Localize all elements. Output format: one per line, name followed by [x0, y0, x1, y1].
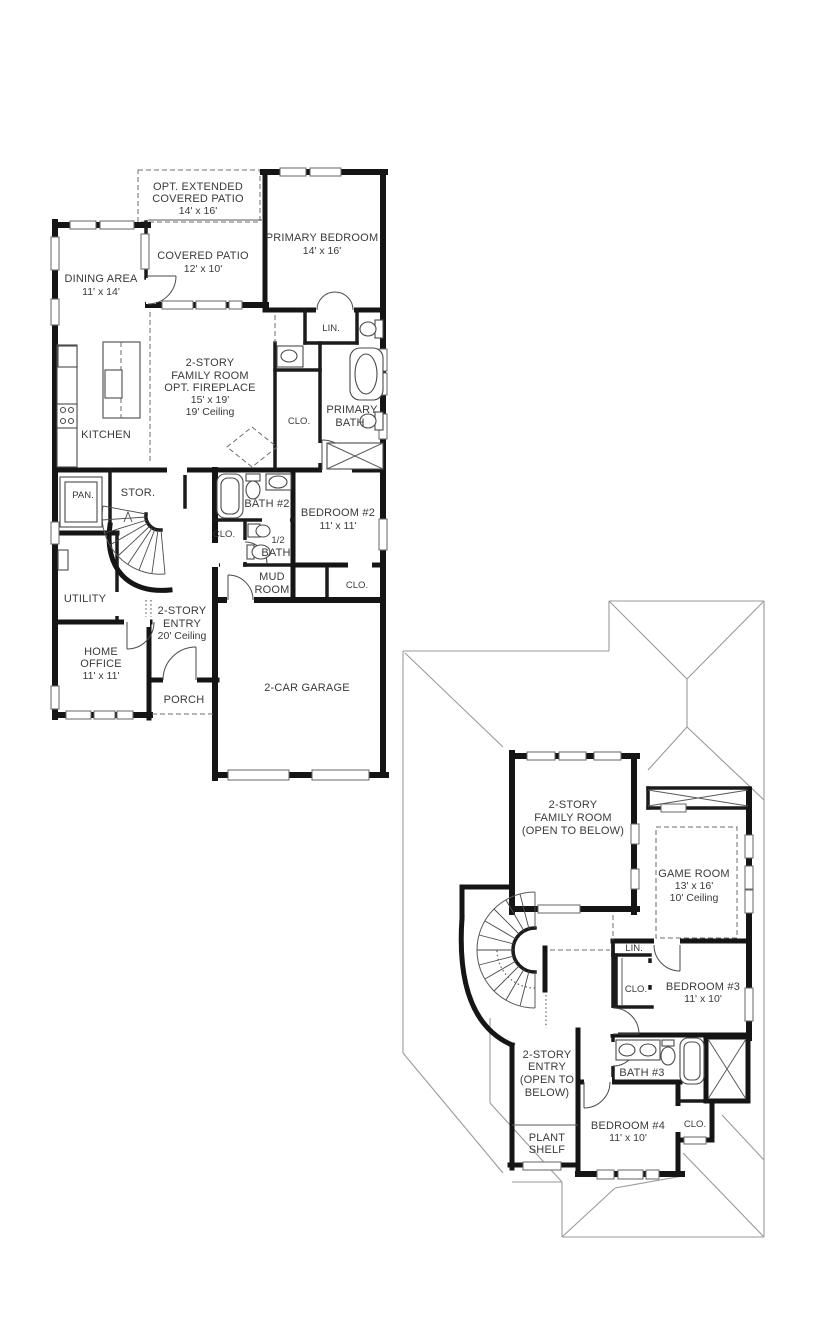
room-label-utility: UTILITY	[64, 593, 107, 605]
svg-text:SHELF: SHELF	[529, 1144, 566, 1156]
svg-text:2-STORY: 2-STORY	[523, 1049, 572, 1061]
svg-text:OPT. FIREPLACE: OPT. FIREPLACE	[164, 382, 255, 394]
svg-text:14' x 16': 14' x 16'	[179, 205, 217, 217]
svg-text:(OPEN TO BELOW): (OPEN TO BELOW)	[522, 825, 624, 837]
refrigerator	[58, 346, 77, 367]
bath2-sink	[266, 474, 291, 490]
svg-text:2-STORY: 2-STORY	[186, 357, 235, 369]
room-label-family-room: 2-STORY FAMILY ROOM OPT. FIREPLACE 15' x…	[164, 357, 255, 418]
range	[57, 404, 77, 428]
svg-text:ENTRY: ENTRY	[528, 1061, 567, 1073]
room-label-home-office: HOME OFFICE 11' x 11'	[80, 646, 122, 682]
room-label-covered-patio: COVERED PATIO 12' x 10'	[157, 250, 249, 275]
svg-text:BATH: BATH	[261, 547, 290, 559]
kitchen-island	[103, 342, 140, 418]
svg-text:2-STORY: 2-STORY	[549, 799, 598, 811]
svg-text:15' x 19': 15' x 19'	[191, 394, 229, 406]
svg-text:FAMILY ROOM: FAMILY ROOM	[534, 812, 612, 824]
room-label-porch: PORCH	[164, 694, 205, 706]
room-label-family-room-open: 2-STORY FAMILY ROOM (OPEN TO BELOW)	[522, 799, 624, 837]
room-label-opt-extended-covered-patio: OPT. EXTENDED COVERED PATIO 14' x 16'	[152, 181, 244, 217]
room-label-garage: 2-CAR GARAGE	[264, 682, 350, 694]
svg-text:PRIMARY BEDROOM: PRIMARY BEDROOM	[266, 232, 379, 244]
bath3-tub	[680, 1038, 704, 1084]
room-label-dining-area: DINING AREA 11' x 14'	[64, 273, 138, 298]
svg-text:HOME: HOME	[84, 646, 118, 658]
utility-appliance	[58, 550, 68, 570]
room-label-mud-room: MUD ROOM	[254, 571, 289, 596]
room-label-bath2: BATH #2	[244, 498, 289, 510]
linen2-door	[654, 945, 680, 971]
svg-text:FAMILY ROOM: FAMILY ROOM	[171, 370, 249, 382]
svg-text:11' x 14': 11' x 14'	[82, 286, 120, 298]
svg-text:COVERED PATIO: COVERED PATIO	[157, 250, 249, 262]
svg-text:14' x 16': 14' x 16'	[303, 245, 341, 257]
room-label-bedroom2-closet: CLO.	[346, 580, 368, 591]
floor-plan-drawing: OPT. EXTENDED COVERED PATIO 14' x 16' CO…	[0, 0, 816, 1344]
room-label-pantry: PAN.	[72, 490, 93, 501]
svg-text:11' x 11': 11' x 11'	[83, 670, 120, 682]
svg-text:BELOW): BELOW)	[525, 1087, 570, 1099]
svg-text:11' x 10': 11' x 10'	[609, 1132, 647, 1144]
pantry-shelves	[60, 477, 102, 527]
svg-text:19' Ceiling: 19' Ceiling	[186, 406, 235, 418]
bath3-toilet	[661, 1040, 675, 1065]
svg-text:1/2: 1/2	[271, 535, 284, 546]
svg-text:13' x 16': 13' x 16'	[675, 880, 713, 892]
room-label-bedroom4-closet: CLO.	[684, 1119, 706, 1130]
stair-direction-arrow	[124, 512, 132, 522]
svg-text:BEDROOM #2: BEDROOM #2	[301, 507, 375, 519]
svg-text:OFFICE: OFFICE	[80, 658, 122, 670]
svg-text:(OPEN TO: (OPEN TO	[520, 1074, 575, 1086]
room-label-primary-bedroom: PRIMARY BEDROOM 14' x 16'	[266, 232, 379, 257]
svg-text:BEDROOM #3: BEDROOM #3	[666, 981, 740, 993]
svg-text:COVERED PATIO: COVERED PATIO	[152, 193, 244, 205]
svg-text:10' Ceiling: 10' Ceiling	[670, 892, 719, 904]
svg-text:BEDROOM #4: BEDROOM #4	[591, 1120, 665, 1132]
room-label-bedroom4: BEDROOM #4 11' x 10'	[591, 1120, 665, 1144]
room-label-linen2: LIN.	[625, 943, 642, 954]
bath3-vanity	[616, 1040, 660, 1060]
room-label-plant-shelf: PLANT SHELF	[529, 1132, 566, 1156]
svg-text:12' x 10': 12' x 10'	[184, 263, 222, 275]
room-label-bedroom2: BEDROOM #2 11' x 11'	[301, 507, 375, 532]
first-floor-plan: OPT. EXTENDED COVERED PATIO 14' x 16' CO…	[51, 168, 387, 780]
floor-plan-sheet: OPT. EXTENDED COVERED PATIO 14' x 16' CO…	[0, 0, 816, 1344]
svg-text:GAME ROOM: GAME ROOM	[658, 868, 729, 880]
room-label-bedroom3: BEDROOM #3 11' x 10'	[666, 981, 740, 1005]
room-label-bedroom3-closet: CLO.	[625, 984, 647, 995]
room-label-storage: STOR.	[121, 487, 155, 499]
room-label-linen: LIN.	[322, 323, 339, 334]
room-label-game-room: GAME ROOM 13' x 16' 10' Ceiling	[658, 868, 729, 904]
svg-text:MUD: MUD	[259, 571, 285, 583]
primary-bath-tub	[350, 348, 383, 400]
attic-access-hatch	[327, 443, 383, 469]
room-label-half-bath: 1/2 BATH	[261, 535, 290, 559]
room-label-entry: 2-STORY ENTRY 20' Ceiling	[158, 605, 207, 642]
primary-bath-vanity	[277, 346, 303, 367]
svg-text:20' Ceiling: 20' Ceiling	[158, 630, 207, 642]
svg-text:2-STORY: 2-STORY	[158, 605, 207, 617]
room-label-bath3: BATH #3	[619, 1067, 664, 1079]
half-bath-sink	[248, 524, 270, 537]
optional-fireplace	[227, 427, 277, 467]
second-floor-plan: 2-STORY FAMILY ROOM (OPEN TO BELOW) GAME…	[403, 601, 764, 1237]
floor2-fixtures	[616, 958, 704, 1084]
svg-text:PRIMARY: PRIMARY	[326, 404, 378, 416]
primary-toilet-1	[360, 320, 383, 338]
svg-text:11' x 11': 11' x 11'	[320, 520, 357, 532]
bath2-toilet	[246, 474, 260, 499]
bath2-tub	[217, 474, 243, 518]
room-label-kitchen: KITCHEN	[81, 429, 131, 441]
room-label-hall-closet: CLO.	[213, 529, 235, 540]
svg-text:ROOM: ROOM	[254, 584, 289, 596]
svg-text:OPT. EXTENDED: OPT. EXTENDED	[153, 181, 243, 193]
svg-text:PLANT: PLANT	[529, 1132, 566, 1144]
svg-text:ENTRY: ENTRY	[163, 618, 202, 630]
room-label-primary-closet: CLO.	[288, 416, 310, 427]
staircase-first-floor	[102, 506, 170, 590]
svg-text:BATH: BATH	[335, 417, 364, 429]
svg-text:11' x 10': 11' x 10'	[684, 993, 722, 1005]
room-label-entry-open: 2-STORY ENTRY (OPEN TO BELOW)	[520, 1049, 575, 1099]
svg-text:DINING AREA: DINING AREA	[64, 273, 138, 285]
